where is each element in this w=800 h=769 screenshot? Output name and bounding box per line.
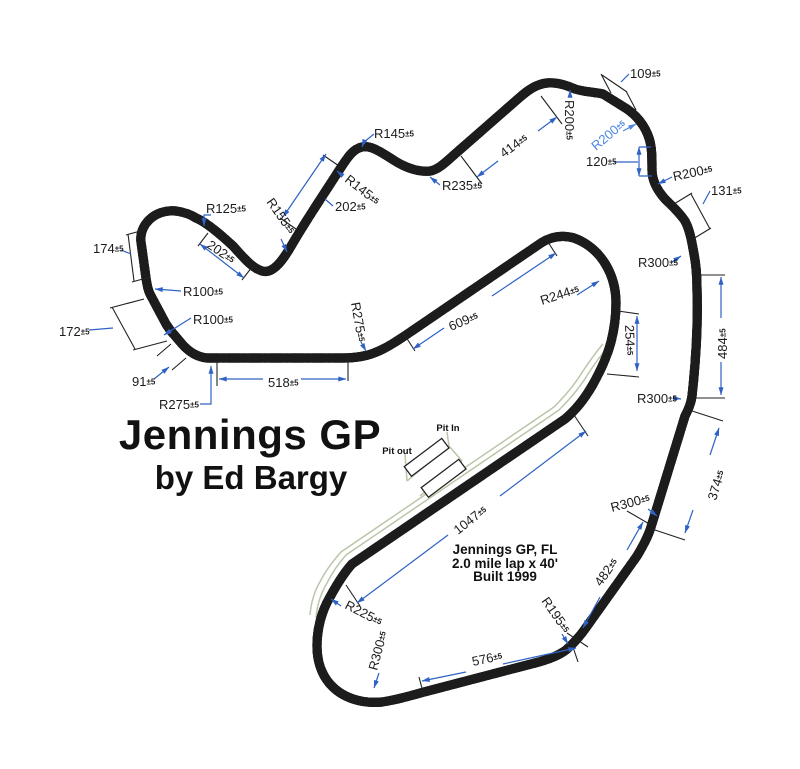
pit-lane	[310, 344, 608, 618]
label-r125: R125±5	[206, 201, 246, 216]
leader-r244	[577, 281, 599, 295]
leader-91	[154, 367, 169, 379]
label-r200-vert: R200±5	[562, 100, 577, 140]
pit-in-connector	[447, 432, 449, 446]
page-title-line1: Jennings GP	[119, 411, 381, 458]
ticks-609	[404, 239, 557, 351]
dimension-labels: 174±5172±591±5R275±5R100±5R100±5R125±520…	[59, 66, 742, 672]
leader-r100-a	[155, 289, 181, 291]
stub-109	[621, 74, 629, 82]
track-surface	[141, 83, 697, 703]
label-r145-top: R145±5	[374, 126, 414, 141]
label-r275-west: R275±5	[159, 397, 199, 412]
ticks-1047	[346, 415, 588, 606]
label-dim-91: 91±5	[132, 374, 156, 389]
label-dim-484: 484±5	[715, 328, 730, 359]
leader-r225	[331, 599, 341, 606]
dimline-414-2	[538, 117, 557, 131]
label-r300-c: R300±5	[609, 490, 652, 515]
track-centerline	[141, 83, 697, 703]
pit-lane-inner-line	[316, 347, 608, 618]
dimline-120-ticks	[614, 147, 652, 176]
label-dim-414: 414±5	[497, 130, 531, 160]
pit-out-label: Pit out	[382, 446, 412, 457]
titles: Jennings GP by Ed Bargy Jennings GP, FL …	[119, 411, 558, 584]
leader-r235	[430, 177, 440, 185]
label-r200-blue: R200±5	[588, 116, 629, 154]
dimline-414-1	[477, 161, 498, 177]
track-map-diagram: 174±5172±591±5R275±5R100±5R100±5R125±520…	[0, 0, 800, 769]
leader-r275-mid	[361, 342, 366, 351]
info-line3: Built 1999	[473, 569, 537, 584]
track-map-page: 174±5172±591±5R275±5R100±5R100±5R125±520…	[0, 0, 800, 769]
stub-202-b	[325, 199, 333, 206]
pit-in-label: Pit In	[436, 423, 459, 434]
label-r275-mid: R275±5	[348, 301, 370, 343]
leader-r195	[562, 634, 568, 644]
leader-r275-west	[200, 366, 211, 404]
label-r195: R195±5	[539, 594, 574, 636]
label-dim-1047: 1047±5	[451, 502, 490, 537]
label-dim-576: 576±5	[471, 648, 505, 669]
label-r225: R225±5	[343, 597, 386, 629]
label-dim-172: 172±5	[59, 324, 90, 339]
info-line1: Jennings GP, FL	[453, 542, 558, 557]
label-dim-120: 120±5	[586, 154, 617, 169]
label-dim-131: 131±5	[711, 183, 742, 198]
track-outline	[141, 83, 697, 703]
dimline-1047-1	[357, 535, 448, 603]
label-dim-609: 609±5	[446, 308, 480, 334]
label-r235: R235±5	[442, 178, 482, 193]
pit-building-1	[404, 438, 449, 476]
label-dim-202-b: 202±5	[335, 199, 366, 214]
label-dim-109: 109±5	[630, 66, 661, 81]
leader-r300-d	[374, 673, 379, 688]
label-r100-b: R100±5	[193, 312, 233, 327]
label-r300-b: R300±5	[637, 391, 677, 406]
label-r300-a: R300±5	[638, 255, 678, 270]
track-edges	[141, 83, 697, 703]
label-r300-d: R300±5	[365, 629, 390, 672]
leader-r200-c	[658, 177, 672, 184]
stub-131	[703, 191, 710, 204]
label-r244: R244±5	[538, 281, 581, 308]
label-r200-c: R200±5	[672, 161, 715, 184]
label-dim-374: 374±5	[705, 468, 728, 502]
label-r100-a: R100±5	[183, 284, 223, 299]
dimline-374-2	[685, 510, 693, 533]
label-dim-174: 174±5	[93, 241, 124, 256]
stub-172	[89, 328, 113, 330]
label-dim-254: 254±5	[622, 325, 638, 357]
page-title-line2: by Ed Bargy	[155, 459, 348, 496]
dimline-374-1	[710, 428, 719, 455]
label-dim-518: 518±5	[268, 375, 299, 390]
